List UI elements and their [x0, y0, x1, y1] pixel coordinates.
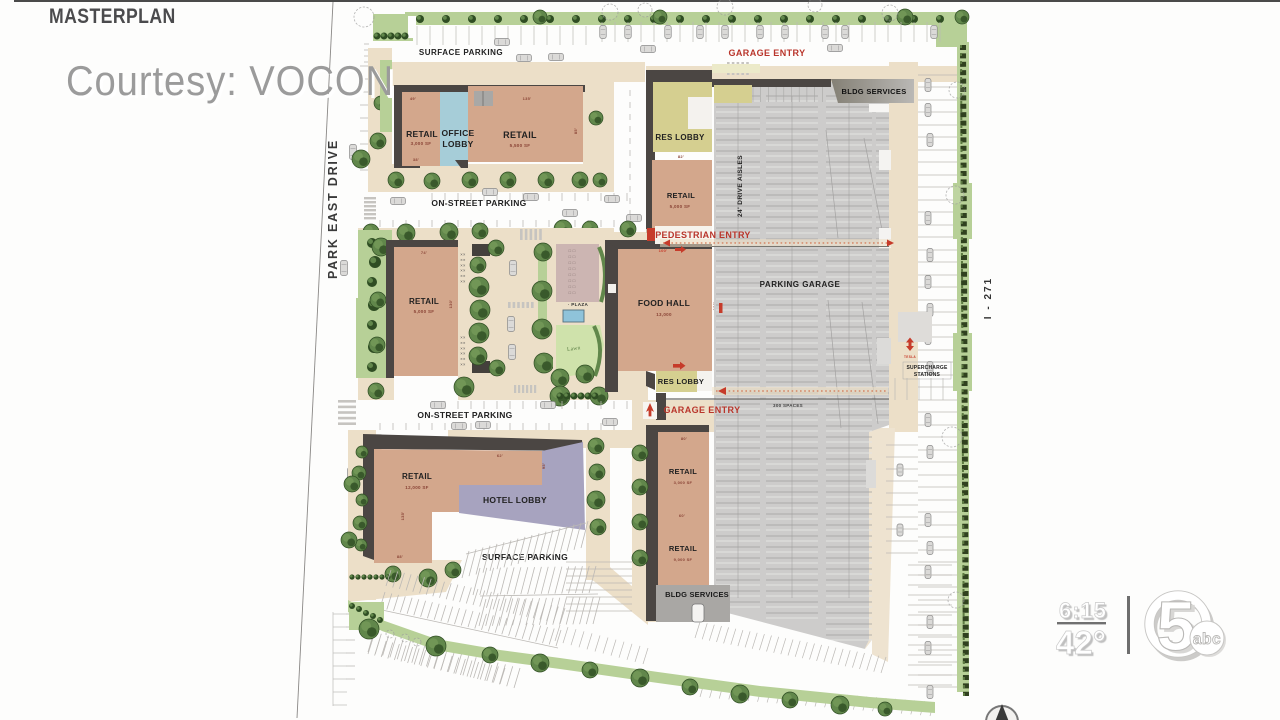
svg-text:RETAIL: RETAIL — [669, 544, 697, 553]
svg-text:38': 38' — [413, 157, 419, 162]
svg-text:□ □: □ □ — [569, 278, 576, 283]
svg-text:5,000 SF: 5,000 SF — [670, 204, 691, 209]
svg-text:I - 271: I - 271 — [983, 277, 994, 319]
svg-text:GARAGE ENTRY: GARAGE ENTRY — [664, 405, 741, 415]
svg-text:RES LOBBY: RES LOBBY — [658, 377, 704, 386]
svg-text:3,000 SF: 3,000 SF — [411, 141, 432, 146]
svg-text:GARAGE ENTRY: GARAGE ENTRY — [729, 48, 806, 58]
svg-text:RETAIL: RETAIL — [669, 467, 697, 476]
svg-text:RETAIL: RETAIL — [406, 129, 438, 139]
svg-text:135': 135' — [400, 512, 405, 521]
svg-text:3,000 SF: 3,000 SF — [674, 480, 693, 485]
svg-text:××: ×× — [460, 252, 466, 257]
svg-text:5,000 SF: 5,000 SF — [414, 309, 435, 314]
svg-text:74': 74' — [421, 250, 427, 255]
svg-text:82': 82' — [678, 154, 684, 159]
svg-text:135': 135' — [523, 96, 532, 101]
svg-text:RETAIL: RETAIL — [503, 130, 537, 140]
svg-text:130': 130' — [448, 300, 453, 309]
svg-text:RETAIL: RETAIL — [402, 472, 432, 481]
svg-text:24' DRIVE AISLES: 24' DRIVE AISLES — [737, 155, 744, 217]
svg-text:85': 85' — [573, 128, 578, 134]
svg-text:××: ×× — [460, 357, 466, 362]
svg-text:PEDESTRIAN ENTRY: PEDESTRIAN ENTRY — [655, 230, 750, 240]
svg-text:□ □: □ □ — [569, 290, 576, 295]
svg-text:49': 49' — [410, 96, 416, 101]
svg-text:××: ×× — [460, 346, 466, 351]
svg-text:××: ×× — [460, 362, 466, 367]
svg-text:HOTEL LOBBY: HOTEL LOBBY — [483, 495, 547, 505]
svg-text:□ □: □ □ — [569, 272, 576, 277]
svg-text:100': 100' — [659, 248, 668, 253]
svg-text:9,000 SF: 9,000 SF — [674, 557, 693, 562]
svg-text:××: ×× — [460, 268, 466, 273]
svg-text:××: ×× — [460, 257, 466, 262]
svg-text:12,000 SF: 12,000 SF — [405, 485, 428, 490]
svg-text:××: ×× — [460, 263, 466, 268]
svg-text:ON-STREET PARKING: ON-STREET PARKING — [417, 410, 512, 420]
svg-text:300 SPACES: 300 SPACES — [773, 403, 803, 408]
svg-text:××: ×× — [460, 279, 466, 284]
svg-text:13,000: 13,000 — [656, 312, 672, 317]
svg-text:STATIONS: STATIONS — [914, 372, 941, 378]
svg-text:□ □: □ □ — [569, 254, 576, 259]
svg-text:OFFICE: OFFICE — [442, 128, 475, 138]
svg-text:RETAIL: RETAIL — [409, 297, 439, 306]
svg-text:BLDG SERVICES: BLDG SERVICES — [841, 87, 906, 96]
svg-text:□ □: □ □ — [569, 266, 576, 271]
svg-text:ON-STREET PARKING: ON-STREET PARKING — [431, 198, 526, 208]
svg-text:RES LOBBY: RES LOBBY — [655, 133, 705, 142]
svg-text:BLDG SERVICES: BLDG SERVICES — [665, 590, 729, 599]
svg-text:LOBBY: LOBBY — [442, 139, 473, 149]
svg-text:PARKING GARAGE: PARKING GARAGE — [760, 280, 841, 289]
svg-text:80': 80' — [681, 436, 687, 441]
svg-text:TESLA: TESLA — [904, 355, 916, 359]
svg-text:95': 95' — [541, 463, 546, 469]
svg-text:SUPERCHARGE: SUPERCHARGE — [906, 365, 948, 371]
svg-text:□ □: □ □ — [569, 260, 576, 265]
svg-text:××: ×× — [460, 274, 466, 279]
svg-text:□ □: □ □ — [569, 284, 576, 289]
svg-text:5,500 SF: 5,500 SF — [510, 143, 531, 148]
svg-text:· PLAZA: · PLAZA — [568, 302, 589, 307]
svg-text:FOOD HALL: FOOD HALL — [638, 298, 690, 308]
svg-text:SURFACE PARKING: SURFACE PARKING — [419, 48, 503, 57]
svg-text:RETAIL: RETAIL — [667, 191, 695, 200]
svg-text:□ □: □ □ — [569, 248, 576, 253]
svg-text:××: ×× — [460, 340, 466, 345]
svg-text:PARK EAST DRIVE: PARK EAST DRIVE — [326, 139, 340, 279]
svg-text:××: ×× — [460, 335, 466, 340]
svg-text:60': 60' — [679, 513, 685, 518]
svg-text:××: ×× — [460, 351, 466, 356]
svg-text:62': 62' — [497, 453, 503, 458]
svg-text:88': 88' — [397, 554, 403, 559]
